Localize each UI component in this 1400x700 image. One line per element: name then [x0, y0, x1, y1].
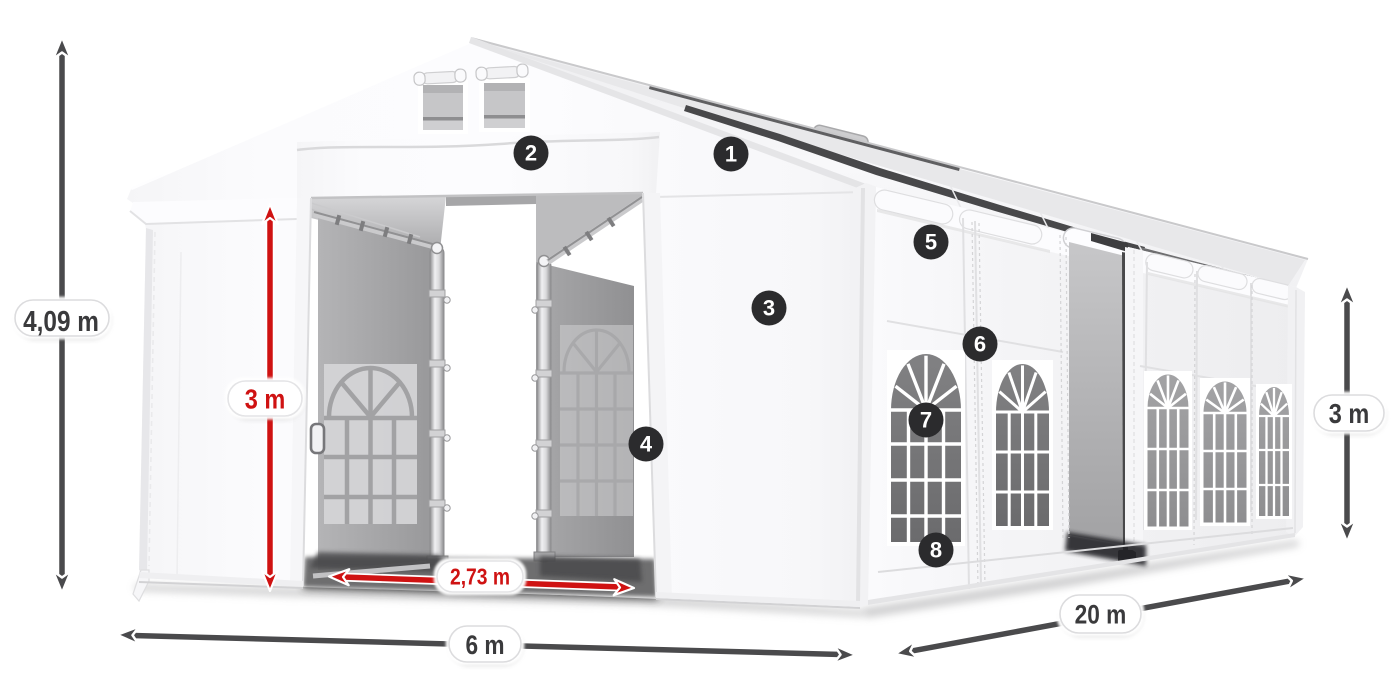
svg-text:3: 3 — [763, 296, 775, 321]
svg-text:1: 1 — [725, 142, 737, 167]
svg-text:3 m: 3 m — [245, 385, 286, 415]
svg-text:2,73 m: 2,73 m — [450, 565, 510, 590]
svg-text:4,09 m: 4,09 m — [23, 305, 99, 337]
svg-text:2: 2 — [525, 141, 537, 166]
svg-text:5: 5 — [925, 230, 937, 255]
svg-text:8: 8 — [930, 538, 942, 563]
svg-text:6 m: 6 m — [465, 630, 504, 660]
svg-text:7: 7 — [920, 408, 932, 433]
svg-text:6: 6 — [974, 332, 986, 357]
svg-text:4: 4 — [640, 432, 653, 457]
svg-text:20 m: 20 m — [1075, 600, 1127, 630]
svg-text:3 m: 3 m — [1329, 399, 1370, 429]
